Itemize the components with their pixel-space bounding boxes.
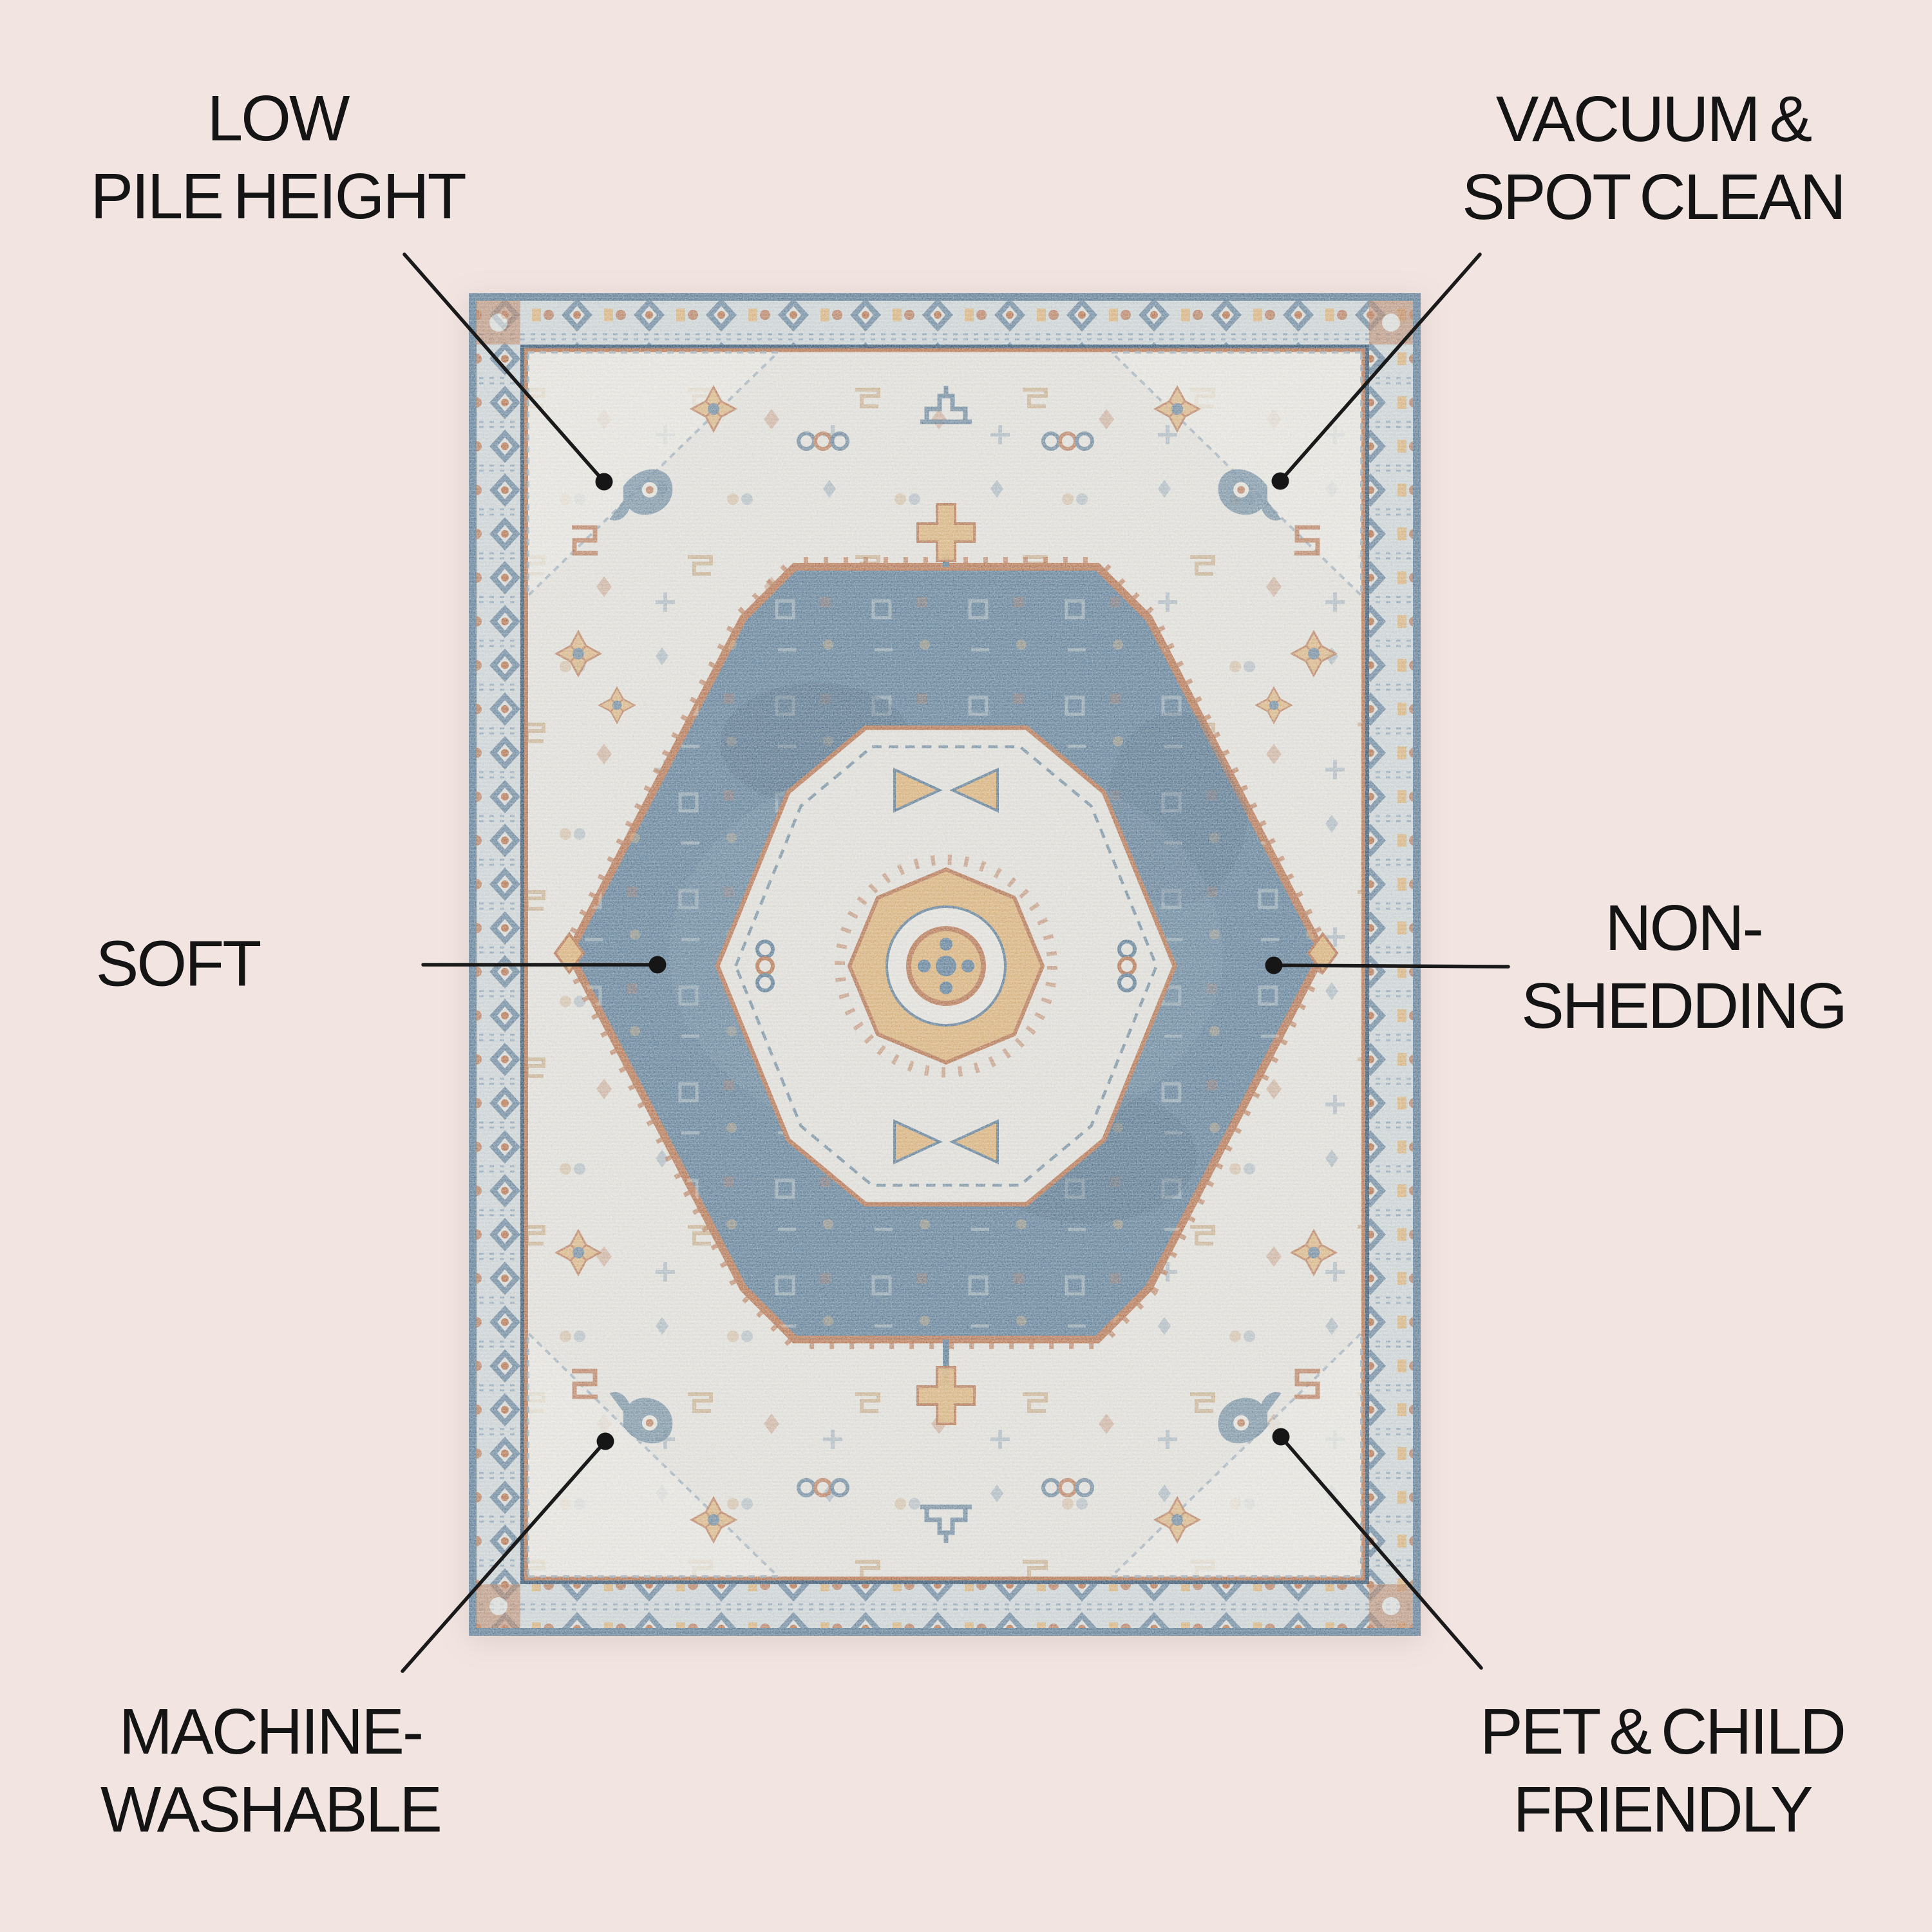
feature-label-line: SOFT bbox=[96, 925, 260, 1003]
feature-label-line: SPOT CLEAN bbox=[1462, 158, 1844, 236]
feature-label-line: WASHABLE bbox=[100, 1771, 440, 1849]
feature-label-low-pile-height: LOW PILE HEIGHT bbox=[90, 80, 464, 236]
feature-label-line: VACUUM & bbox=[1462, 80, 1844, 158]
rug-image bbox=[469, 293, 1421, 1636]
feature-label-line: NON- bbox=[1521, 889, 1846, 967]
feature-label-machine-washable: MACHINE- WASHABLE bbox=[100, 1693, 440, 1849]
feature-label-pet-child-friendly: PET & CHILD FRIENDLY bbox=[1480, 1693, 1844, 1849]
product-infographic: LOW PILE HEIGHT VACUUM & SPOT CLEAN SOFT… bbox=[0, 0, 1932, 1932]
feature-label-line: PET & CHILD bbox=[1480, 1693, 1844, 1771]
feature-label-line: PILE HEIGHT bbox=[90, 158, 464, 236]
feature-label-line: FRIENDLY bbox=[1480, 1771, 1844, 1849]
feature-label-non-shedding: NON- SHEDDING bbox=[1521, 889, 1846, 1045]
feature-label-line: SHEDDING bbox=[1521, 967, 1846, 1045]
feature-label-vacuum-spot-clean: VACUUM & SPOT CLEAN bbox=[1462, 80, 1844, 236]
feature-label-line: MACHINE- bbox=[100, 1693, 440, 1771]
feature-label-line: LOW bbox=[90, 80, 464, 158]
rug-grain-dark bbox=[469, 293, 1421, 1636]
rug-illustration bbox=[469, 293, 1421, 1636]
feature-label-soft: SOFT bbox=[96, 925, 260, 1003]
